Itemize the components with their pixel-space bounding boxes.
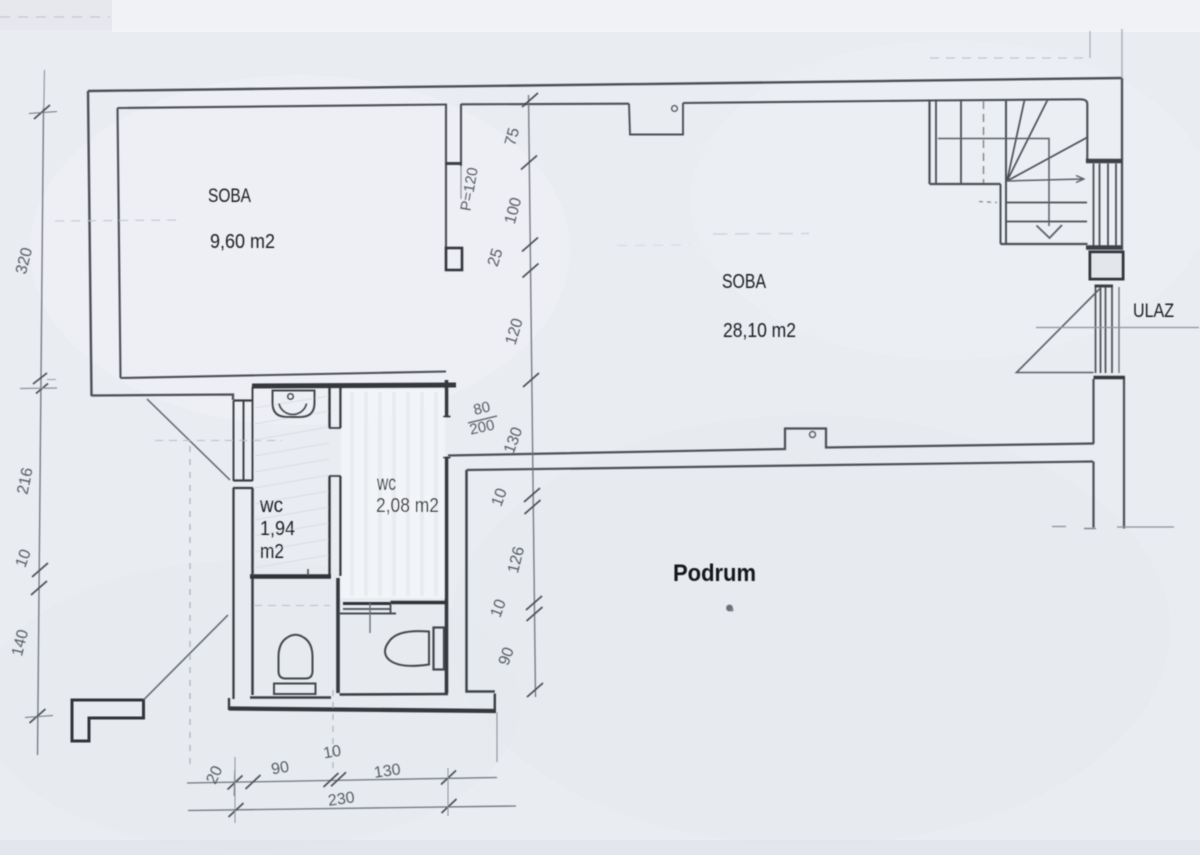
svg-text:wc: wc [259, 494, 283, 517]
svg-text:Podrum: Podrum [673, 560, 756, 587]
svg-text:9,60 m2: 9,60 m2 [210, 231, 275, 253]
svg-text:SOBA: SOBA [722, 271, 767, 293]
svg-text:SOBA: SOBA [208, 186, 251, 207]
svg-text:10: 10 [322, 743, 343, 763]
svg-text:1,94: 1,94 [260, 518, 295, 540]
svg-text:2,08 m2: 2,08 m2 [376, 495, 439, 517]
svg-text:90: 90 [270, 759, 291, 779]
svg-text:wc: wc [376, 472, 396, 495]
svg-text:m2: m2 [260, 541, 284, 563]
svg-text:ULAZ: ULAZ [1133, 301, 1174, 322]
svg-text:28,10 m2: 28,10 m2 [723, 320, 796, 342]
